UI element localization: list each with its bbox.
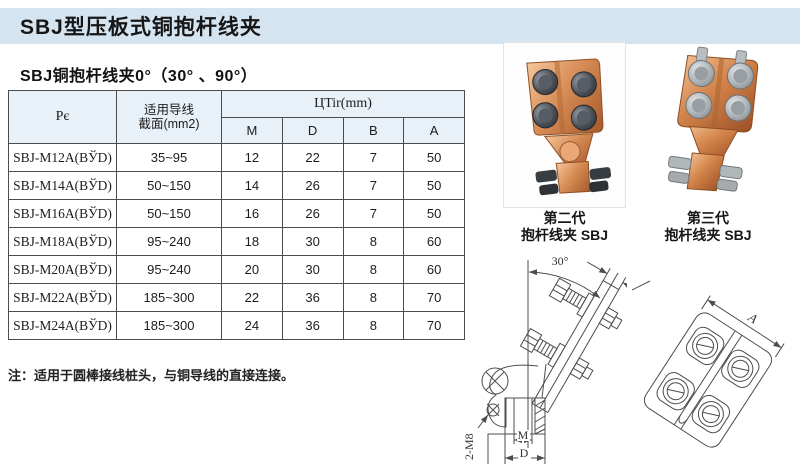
m-cell: 20: [222, 256, 283, 284]
b-cell: 8: [343, 228, 404, 256]
model-cell: SBJ-M16A(BЎD): [9, 200, 117, 228]
b-cell: 8: [343, 284, 404, 312]
section-cell: 95~240: [117, 256, 222, 284]
model-cell: SBJ-M20A(BЎD): [9, 256, 117, 284]
table-row: SBJ-M20A(BЎD) 95~240 20 30 8 60: [9, 256, 465, 284]
section-cell: 185~300: [117, 312, 222, 340]
a-cell: 50: [404, 144, 465, 172]
header-dimensions-group: ЦTir(mm): [222, 91, 465, 118]
d-cell: 22: [282, 144, 343, 172]
clamp-gen2-illustration: [504, 43, 625, 207]
model-cell: SBJ-M22A(BЎD): [9, 284, 117, 312]
d-cell: 36: [282, 284, 343, 312]
d-cell: 30: [282, 228, 343, 256]
model-cell: SBJ-M24A(BЎD): [9, 312, 117, 340]
spec-table: Pє 适用导线 截面(mm2) ЦTir(mm) M D B A SBJ-M12…: [8, 90, 465, 340]
table-row: SBJ-M12A(BЎD) 35~95 12 22 7 50: [9, 144, 465, 172]
header-dim-a: A: [404, 118, 465, 144]
b-cell: 8: [343, 256, 404, 284]
table-row: SBJ-M14A(BЎD) 50~150 14 26 7 50: [9, 172, 465, 200]
section-cell: 35~95: [117, 144, 222, 172]
b-cell: 8: [343, 312, 404, 340]
d-dimension-label: D: [520, 446, 529, 460]
d-cell: 26: [282, 200, 343, 228]
angle-dimension-label: 30°: [552, 254, 569, 268]
section-cell: 95~240: [117, 228, 222, 256]
caption-gen3-line2: 抱杆线夹 SBJ: [638, 227, 778, 244]
footnote: 注：适用于圆棒接线桩头，与铜导线的直接连接。: [8, 365, 294, 384]
caption-gen2-line2: 抱杆线夹 SBJ: [503, 227, 626, 244]
model-cell: SBJ-M18A(BЎD): [9, 228, 117, 256]
m-cell: 12: [222, 144, 283, 172]
m-cell: 14: [222, 172, 283, 200]
section-cell: 50~150: [117, 172, 222, 200]
a-dimension-label: A: [745, 309, 761, 326]
a-cell: 50: [404, 200, 465, 228]
caption-gen3-line1: 第三代: [638, 210, 778, 227]
table-row: SBJ-M22A(BЎD) 185~300 22 36 8 70: [9, 284, 465, 312]
header-dim-d: D: [282, 118, 343, 144]
title-bar: SBJ型压板式铜抱杆线夹: [0, 8, 800, 44]
caption-gen2: 第二代 抱杆线夹 SBJ: [503, 210, 626, 244]
header-conductor-line1: 适用导线: [144, 103, 194, 117]
d-cell: 36: [282, 312, 343, 340]
section-cell: 185~300: [117, 284, 222, 312]
m-cell: 18: [222, 228, 283, 256]
technical-drawing-side-view: 30° B: [442, 246, 627, 470]
m-cell: 24: [222, 312, 283, 340]
section-subtitle: SBJ铜抱杆线夹0°（30° 、90°）: [20, 62, 257, 86]
d-cell: 26: [282, 172, 343, 200]
m-cell: 16: [222, 200, 283, 228]
header-conductor-line2: 截面(mm2): [138, 117, 199, 131]
header-dim-m: M: [222, 118, 283, 144]
product-photo-gen2: [503, 42, 626, 208]
header-conductor-section: 适用导线 截面(mm2): [117, 91, 222, 144]
caption-gen3: 第三代 抱杆线夹 SBJ: [638, 210, 778, 244]
table-row: SBJ-M24A(BЎD) 185~300 24 36 8 70: [9, 312, 465, 340]
caption-gen2-line1: 第二代: [503, 210, 626, 227]
page-title: SBJ型压板式铜抱杆线夹: [20, 11, 262, 41]
d-cell: 30: [282, 256, 343, 284]
technical-drawing-top-view: A: [628, 276, 798, 470]
m-dimension-label: M: [518, 428, 529, 442]
thread-callout-label: 2-M8: [462, 433, 476, 460]
clamp-gen3-illustration: [638, 45, 778, 208]
a-cell: 50: [404, 172, 465, 200]
b-cell: 7: [343, 172, 404, 200]
header-dim-b: B: [343, 118, 404, 144]
b-cell: 7: [343, 200, 404, 228]
b-cell: 7: [343, 144, 404, 172]
product-photo-gen3: [638, 45, 778, 208]
section-cell: 50~150: [117, 200, 222, 228]
model-cell: SBJ-M14A(BЎD): [9, 172, 117, 200]
table-row: SBJ-M18A(BЎD) 95~240 18 30 8 60: [9, 228, 465, 256]
header-model: Pє: [9, 91, 117, 144]
model-cell: SBJ-M12A(BЎD): [9, 144, 117, 172]
m-cell: 22: [222, 284, 283, 312]
table-row: SBJ-M16A(BЎD) 50~150 16 26 7 50: [9, 200, 465, 228]
